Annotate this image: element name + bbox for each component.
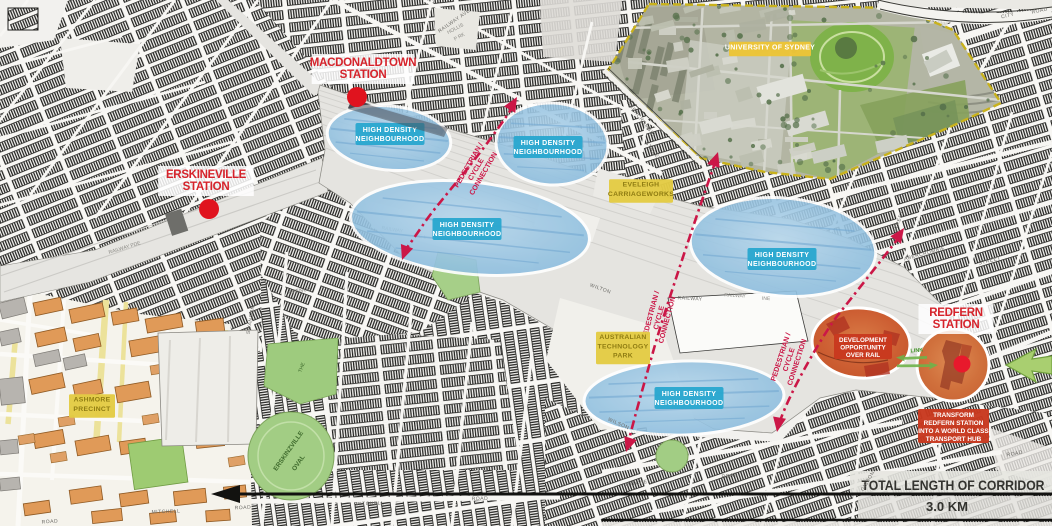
svg-text:MITCHELL: MITCHELL	[152, 509, 181, 516]
svg-text:LINK: LINK	[910, 347, 923, 354]
svg-text:ROAD: ROAD	[235, 505, 252, 512]
svg-text:REDFERN STATION: REDFERN STATION	[924, 420, 984, 427]
svg-text:STATION: STATION	[933, 319, 980, 331]
svg-text:ERSKINEVILLE: ERSKINEVILLE	[166, 169, 247, 181]
svg-text:TOTAL LENGTH OF CORRIDOR: TOTAL LENGTH OF CORRIDOR	[862, 477, 1045, 493]
svg-text:ROAD: ROAD	[472, 496, 489, 503]
svg-text:INTO A WORLD CLASS: INTO A WORLD CLASS	[918, 428, 989, 435]
svg-text:NEIGHBOURHOOD: NEIGHBOURHOOD	[433, 231, 502, 238]
svg-text:INE: INE	[762, 296, 771, 302]
svg-text:STATION: STATION	[183, 181, 230, 193]
svg-text:CARRIAGEWORKS: CARRIAGEWORKS	[608, 191, 674, 198]
svg-text:ROAD: ROAD	[42, 518, 59, 525]
svg-text:MITCHELL: MITCHELL	[356, 501, 385, 508]
svg-text:OVER RAIL: OVER RAIL	[846, 352, 880, 359]
svg-text:TRANSFORM: TRANSFORM	[933, 412, 974, 419]
svg-text:REDFERN: REDFERN	[929, 307, 983, 319]
svg-text:TECHNOLOGY: TECHNOLOGY	[598, 343, 649, 350]
svg-text:UNIVERSITY OF SYDNEY: UNIVERSITY OF SYDNEY	[725, 44, 815, 51]
svg-text:HIGH DENSITY: HIGH DENSITY	[755, 252, 810, 259]
svg-text:PARK: PARK	[613, 353, 633, 360]
svg-text:NEIGHBOURHOOD: NEIGHBOURHOOD	[655, 400, 724, 407]
svg-text:NEIGHBOURHOOD: NEIGHBOURHOOD	[356, 136, 425, 143]
svg-text:AUSTRALIAN: AUSTRALIAN	[599, 334, 646, 341]
svg-text:NEIGHBOURHOOD: NEIGHBOURHOOD	[514, 149, 583, 156]
svg-text:DEVELOPMENT: DEVELOPMENT	[839, 337, 887, 344]
svg-text:NEIGHBOURHOOD: NEIGHBOURHOOD	[748, 261, 817, 268]
svg-text:ASHMORE: ASHMORE	[74, 397, 111, 404]
svg-text:HIGH DENSITY: HIGH DENSITY	[363, 127, 418, 134]
svg-text:TRANSPORT HUB: TRANSPORT HUB	[926, 436, 982, 443]
svg-text:MACDONALDTOWN: MACDONALDTOWN	[310, 57, 416, 69]
svg-text:STATION: STATION	[340, 69, 387, 81]
svg-text:HIGH DENSITY: HIGH DENSITY	[440, 222, 495, 229]
svg-text:3.0 KM: 3.0 KM	[926, 500, 968, 514]
svg-text:HIGH DENSITY: HIGH DENSITY	[662, 391, 717, 398]
svg-text:RAILWAY: RAILWAY	[724, 292, 747, 299]
svg-text:PRECINCT: PRECINCT	[73, 406, 111, 413]
svg-text:OPPORTUNITY: OPPORTUNITY	[840, 345, 886, 352]
svg-text:HIGH DENSITY: HIGH DENSITY	[521, 140, 576, 147]
svg-text:EVELEIGH: EVELEIGH	[623, 182, 660, 189]
